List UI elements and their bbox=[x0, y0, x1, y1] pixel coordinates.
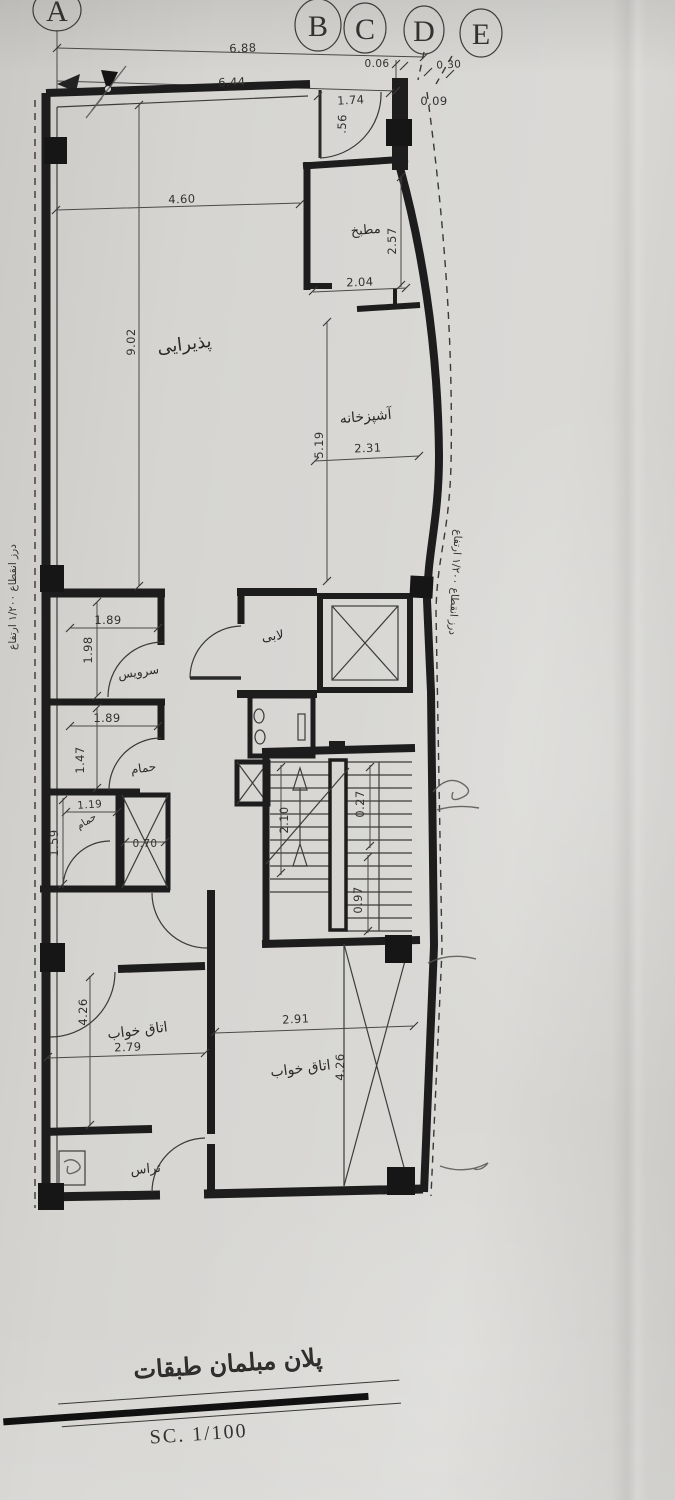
room-label-bath: حمام bbox=[130, 759, 157, 776]
staircase bbox=[262, 741, 420, 944]
room-label-wc: سرویس bbox=[117, 662, 160, 683]
dim-bath2-depth: 1.59 bbox=[47, 829, 61, 856]
room-label-terrace: تراس bbox=[130, 1161, 162, 1179]
dim-gap-cd: 0.06 bbox=[365, 58, 390, 70]
dim-bedl-width: 2.79 bbox=[114, 1040, 142, 1055]
dimension-lines bbox=[44, 44, 454, 1129]
floor-plan-drawing: A B C D E bbox=[0, 0, 675, 1500]
pencil-scribbles bbox=[428, 780, 488, 1169]
dim-reception-length: 9.02 bbox=[124, 328, 138, 355]
dim-kitchen-width: 2.31 bbox=[354, 441, 382, 456]
room-label-kitchen: آشپزخانه bbox=[339, 406, 393, 428]
dim-wc-depth: 1.98 bbox=[81, 636, 95, 663]
room-label-lobby: لابی bbox=[261, 628, 284, 645]
scanned-floor-plan-sheet: A B C D E bbox=[0, 0, 675, 1500]
grid-label-d: D bbox=[413, 15, 435, 48]
title-block: پلان مبلمان طبقات SC. 1/100 bbox=[0, 1338, 403, 1459]
dim-stair-landing: 0.97 bbox=[351, 886, 365, 913]
dimension-ticks bbox=[44, 44, 454, 1129]
dim-bath2-width: 1.19 bbox=[77, 798, 103, 812]
lobby-door-arc bbox=[190, 626, 241, 678]
dim-pantry-depth: 2.57 bbox=[385, 227, 399, 254]
elevator-shaft bbox=[320, 596, 410, 690]
dimension-texts: 6.88 6.44 0.06 0.30 1.74 0.09 .56 4.60 9… bbox=[47, 41, 462, 1081]
dim-reception-width: 4.60 bbox=[168, 192, 196, 207]
dim-overall-a-c: 6.44 bbox=[218, 75, 246, 90]
grid-bubbles: A B C D E bbox=[33, 0, 502, 57]
terrace-fixture bbox=[59, 1151, 85, 1185]
grid-label-c: C bbox=[355, 13, 375, 46]
dim-bedr-width: 2.91 bbox=[282, 1011, 310, 1026]
scale-label: SC. 1/100 bbox=[149, 1420, 248, 1449]
dim-kitchen-length: 5.19 bbox=[312, 431, 326, 458]
dim-bedr-length: 4.26 bbox=[333, 1053, 347, 1080]
note-right-joint: درز انقطاع ۱/۲۰۰ ارتفاع bbox=[446, 529, 464, 636]
lobby-walls bbox=[190, 592, 317, 694]
bedroom-walls bbox=[42, 890, 409, 1192]
dim-wc-width: 1.89 bbox=[94, 613, 121, 627]
grid-label-e: E bbox=[472, 18, 490, 51]
dim-entry-side: .56 bbox=[335, 114, 350, 134]
dim-overall-a-d: 6.88 bbox=[229, 41, 257, 56]
room-label-pantry: مطبخ bbox=[350, 222, 381, 240]
hall-door-arc bbox=[152, 893, 207, 948]
dim-pantry-width: 2.04 bbox=[346, 275, 374, 290]
sheet-title: پلان مبلمان طبقات bbox=[133, 1344, 324, 1385]
dim-entry-offset: 0.09 bbox=[420, 94, 447, 108]
room-label-bedroom-right: اتاق خواب bbox=[270, 1057, 332, 1080]
room-label-reception: پذیرایی bbox=[156, 331, 213, 358]
room-label-bath2: حمام bbox=[75, 812, 99, 833]
dim-gap-de: 0.30 bbox=[436, 58, 462, 71]
bath2-door-arc bbox=[63, 841, 110, 888]
dim-bath-depth: 1.47 bbox=[73, 746, 87, 773]
dim-shaft-width: 0.70 bbox=[133, 838, 158, 850]
dim-stair-flight: 2.10 bbox=[277, 806, 291, 833]
stair-stringer bbox=[330, 760, 346, 930]
void-cross-brace bbox=[344, 944, 409, 1186]
dim-entry-opening: 1.74 bbox=[337, 92, 365, 107]
dim-stair-tread: 0.27 bbox=[353, 790, 367, 817]
dim-bath-width: 1.89 bbox=[93, 711, 120, 725]
grid-label-a: A bbox=[46, 0, 68, 28]
grid-label-b: B bbox=[308, 10, 328, 43]
dim-bedl-length: 4.26 bbox=[76, 998, 90, 1025]
note-left-joint: درز انقطاع ۱/۲۰۰ ارتفاع bbox=[7, 544, 19, 650]
